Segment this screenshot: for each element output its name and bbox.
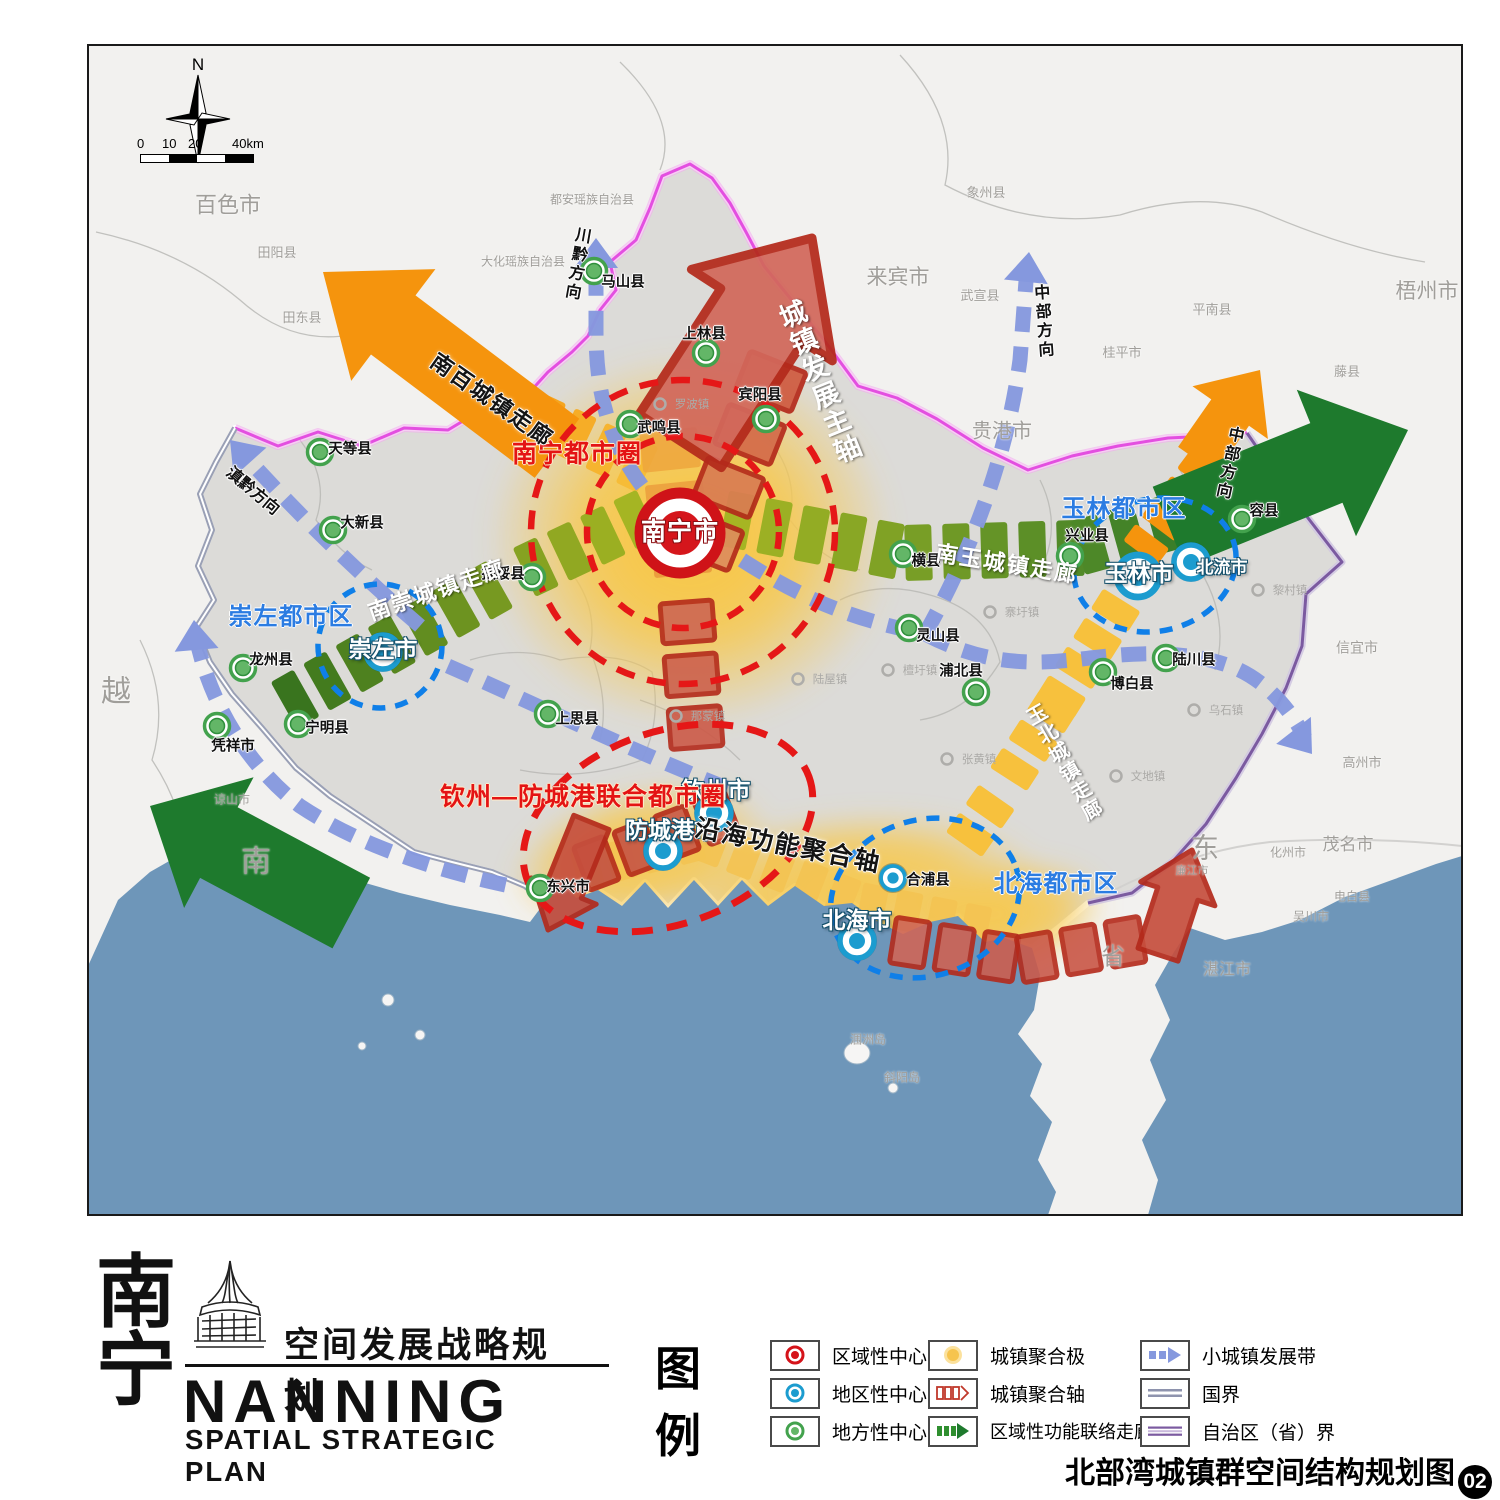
local-center-marker-core <box>533 881 548 896</box>
local-center-marker-core <box>291 717 306 732</box>
local-center-marker-core <box>587 264 602 279</box>
legend-center-district-icon <box>770 1378 820 1409</box>
local-center-marker-core <box>699 346 714 361</box>
local-center-marker-core <box>1096 665 1111 680</box>
nanyu-corridor <box>1018 521 1047 578</box>
local-center-marker-core <box>1063 549 1078 564</box>
legend-item: 国界 <box>1140 1379 1240 1407</box>
title-cn-char-top: 南 <box>96 1255 176 1333</box>
regional-center-marker-core <box>658 511 702 555</box>
scale-tick: 10 <box>162 136 176 151</box>
caption-text: 北部湾城镇群空间结构规划图 <box>1065 1457 1455 1490</box>
exhibition-center-logo-icon <box>180 1257 280 1357</box>
map-caption: 北部湾城镇群空间结构规划图02 <box>792 1448 1492 1499</box>
legend-item-label: 国界 <box>1202 1380 1240 1407</box>
axis-segment <box>1060 924 1101 975</box>
local-center-marker-core <box>623 417 638 432</box>
local-center-marker-core <box>525 570 540 585</box>
legend-item: 地区性中心 <box>770 1379 927 1407</box>
local-center-marker-core <box>969 685 984 700</box>
district-center-marker-core <box>375 644 391 660</box>
scale-tick: 40km <box>232 136 264 151</box>
axis-segment <box>934 924 975 975</box>
scale-tick: 20 <box>188 136 202 151</box>
axis-segment <box>664 653 719 697</box>
legend-item-label: 区域性功能联络走廊 <box>990 1418 1152 1444</box>
legend-item-label: 地区性中心 <box>832 1380 927 1407</box>
district-center-marker-core <box>1183 554 1199 570</box>
district-center-marker-core <box>887 872 898 883</box>
legend-item: 地方性中心 <box>770 1417 927 1445</box>
local-center-marker-core <box>902 621 917 636</box>
title-cn-char-bottom: 宁 <box>96 1333 176 1411</box>
district-center-marker-core <box>655 843 671 859</box>
legend-heading-bottom: 例 <box>655 1400 701 1466</box>
legend-item: 区域性功能联络走廊 <box>928 1417 1152 1445</box>
local-center-marker-core <box>759 412 774 427</box>
legend-item-label: 区域性中心 <box>832 1342 927 1369</box>
local-center-marker-core <box>1159 651 1174 666</box>
local-center-marker-core <box>210 719 225 734</box>
legend-item: 自治区（省）界 <box>1140 1417 1335 1445</box>
legend-item-label: 自治区（省）界 <box>1202 1418 1335 1445</box>
legend-item-label: 城镇聚合轴 <box>990 1380 1085 1407</box>
local-center-marker-core <box>326 523 341 538</box>
legend-item: 城镇聚合轴 <box>928 1379 1085 1407</box>
legend-town-belt-icon <box>1140 1340 1190 1371</box>
local-center-marker-core <box>236 661 251 676</box>
district-center-marker-core <box>1128 566 1148 586</box>
legend-regional-corridor-icon <box>928 1416 978 1447</box>
legend-agg-axis-icon <box>928 1378 978 1409</box>
legend-province-border-icon <box>1140 1416 1190 1447</box>
legend-center-regional-icon <box>770 1340 820 1371</box>
legend-center-local-icon <box>770 1416 820 1447</box>
legend-item: 小城镇发展带 <box>1140 1341 1316 1369</box>
legend-item-label: 小城镇发展带 <box>1202 1342 1316 1369</box>
local-center-marker-core <box>541 707 556 722</box>
legend-item: 城镇聚合极 <box>928 1341 1085 1369</box>
legend-item: 区域性中心 <box>770 1341 927 1369</box>
axis-segment <box>1016 932 1057 983</box>
local-center-marker-core <box>1235 512 1250 527</box>
title-subtitle-en: SPATIAL STRATEGIC PLAN <box>185 1424 568 1488</box>
scale-tick: 0 <box>137 136 144 151</box>
legend-national-border-icon <box>1140 1378 1190 1409</box>
scale-bar: 0 10 20 40km <box>140 136 270 170</box>
page: N 0 10 20 40km 南宁市崇左市玉林市北流市钦州市防城港市北海市合浦县… <box>0 0 1500 1500</box>
title-cn-calligraphy: 南 宁 <box>96 1255 176 1412</box>
nanyu-corridor <box>980 522 1009 579</box>
title-block: 南 宁 空间发展战略规划 NANNING SPATIAL STRATEGIC P… <box>88 1255 568 1455</box>
legend-agg-pole-icon <box>928 1340 978 1371</box>
local-center-marker-core <box>896 547 911 562</box>
district-center-marker-core <box>706 805 722 821</box>
local-center-marker-core <box>313 445 328 460</box>
scale-bar-graphic <box>140 154 254 163</box>
caption-number-badge: 02 <box>1458 1465 1492 1499</box>
district-center-marker-core <box>849 933 865 949</box>
legend-item-label: 城镇聚合极 <box>990 1342 1085 1369</box>
axis-segment <box>889 917 930 968</box>
legend-item-label: 地方性中心 <box>832 1418 927 1445</box>
legend-heading-top: 图 <box>655 1333 701 1399</box>
